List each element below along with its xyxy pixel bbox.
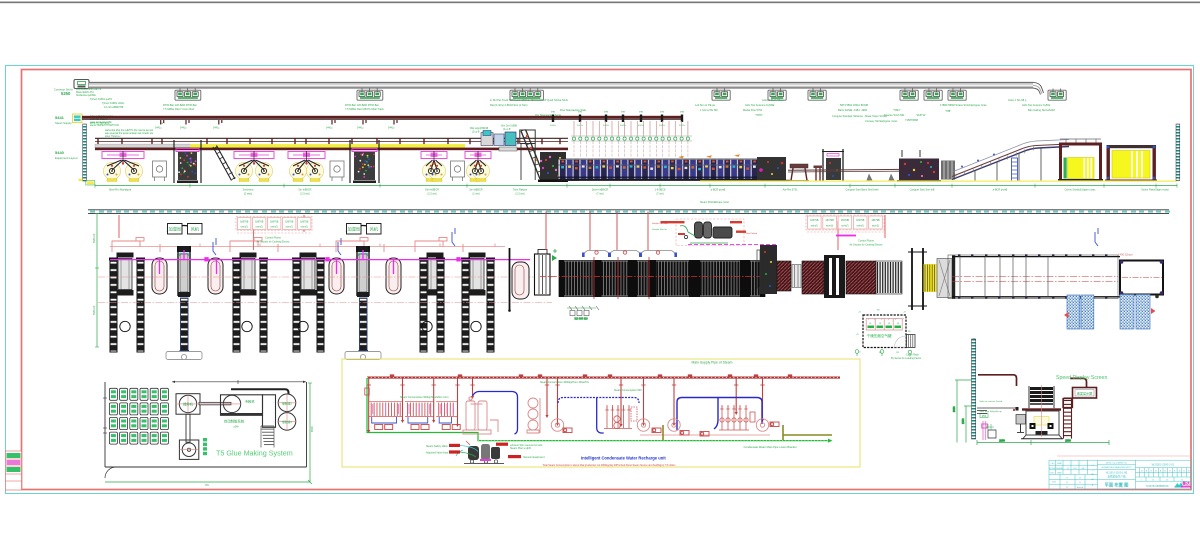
svg-text:5250: 5250	[61, 91, 71, 96]
svg-text:(2 up B: (2 up B	[503, 129, 511, 131]
svg-text:Adjusted Valve Auto: Adjusted Valve Auto	[426, 451, 449, 454]
svg-text:5HB: 5HB	[621, 112, 626, 114]
svg-text:a-BCR pnzrB: a-BCR pnzrB	[711, 189, 726, 192]
svg-text:5HB: 5HB	[551, 112, 556, 114]
svg-text:Cable Rack: Cable Rack	[906, 353, 920, 356]
svg-text:5950.00: 5950.00	[92, 233, 96, 243]
svg-text:Steam Plan w dphl: Steam Plan w dphl	[510, 447, 531, 450]
svg-text:2300: 2300	[1065, 440, 1071, 443]
svg-text:5HB: 5HB	[639, 112, 644, 114]
svg-text:5m-ln9BCR: 5m-ln9BCR	[299, 189, 312, 192]
svg-text:5873 5891 18911 BCM8: 5873 5891 18911 BCM8	[840, 103, 868, 107]
svg-text:18479B: 18479B	[841, 219, 850, 222]
svg-text:18676B: 18676B	[300, 221, 309, 224]
svg-text:5441c: 5441c	[213, 127, 220, 130]
svg-text:干燥压缩空气罐: 干燥压缩空气罐	[867, 333, 893, 338]
svg-text:Air Section for Coulting Elect: Air Section for Coulting Electric	[257, 240, 291, 243]
svg-text:Congute Sant Stm-lnB: Congute Sant Stm-lnB	[910, 189, 935, 192]
svg-text:a-BCR pnzrB: a-BCR pnzrB	[993, 189, 1008, 192]
svg-text:3000: 3000	[953, 406, 956, 412]
svg-text:BCBHETHE-CBEBHTHE-SHTC: BCBHETHE-CBEBHTHE-SHTC	[1102, 467, 1132, 469]
svg-text:18676B: 18676B	[270, 221, 279, 224]
svg-text:Anke 1 Sts/h 98 pe: Anke 1 Sts/h 98 pe	[762, 98, 784, 102]
svg-text:Anke 1 Sts 98 p: Anke 1 Sts 98 p	[1008, 98, 1027, 102]
svg-text:18676B: 18676B	[255, 221, 264, 224]
svg-text:加湿局: 加湿局	[348, 226, 361, 233]
svg-text:5HB: 5HB	[578, 112, 583, 114]
svg-text:1788A79818 Strass Strzcha(Upp: 1788A79818 Strass Strzcha(Upper Gras	[940, 103, 987, 107]
svg-text:4879 (7YHHH4HL: 4879 (7YHHH4HL	[90, 122, 110, 125]
svg-text:Steel-Rm Manakpra: Steel-Rm Manakpra	[109, 189, 132, 192]
svg-text:储胶罐1: 储胶罐1	[282, 420, 292, 424]
svg-text:Stm Prtktrd: Stm Prtktrd	[746, 232, 758, 235]
svg-text:Steam Consumption 900kg/Hour&S: Steam Consumption 900kg/Hour&Stm Corn	[400, 396, 449, 399]
svg-text:(7 set): (7 set)	[656, 193, 663, 196]
svg-text:7.5 M/Bar Rail 7-Conn Rail: 7.5 M/Bar Rail 7-Conn Rail	[163, 107, 194, 111]
svg-text:BC/NE: BC/NE	[1049, 468, 1056, 470]
svg-text:5441c: 5441c	[357, 127, 364, 130]
svg-text:(2.5 set): (2.5 set)	[427, 193, 436, 196]
svg-text:Steam Consumption 900: Steam Consumption 900	[614, 389, 642, 392]
svg-text:5HB: 5HB	[680, 112, 685, 114]
svg-text:Equipment Layout: Equipment Layout	[55, 156, 78, 160]
svg-text:加湿局: 加湿局	[169, 226, 182, 233]
svg-text:szzn白: szzn白	[826, 224, 834, 228]
svg-text:artes Thzams.c: artes Thzams.c	[105, 135, 122, 138]
svg-text:Leli Stm to PE pe: Leli Stm to PE pe	[695, 103, 716, 107]
svg-text:1 Sts to PE SM: 1 Sts to PE SM	[700, 108, 718, 112]
svg-text:风机: 风机	[191, 226, 200, 233]
svg-text:310 390 310: 310 390 310	[574, 318, 588, 321]
svg-text:RT/R-Bar 126-BAR RT/R-Bar: RT/R-Bar 126-BAR RT/R-Bar	[345, 103, 379, 107]
svg-text:Ate-Rm 5791: Ate-Rm 5791	[783, 189, 798, 192]
svg-text:Steam Prtktr&Drape mzac: Steam Prtktr&Drape mzac	[700, 201, 730, 204]
svg-text:7198781188888918: 7198781188888918	[1146, 484, 1169, 488]
svg-text:"7878": "7878"	[755, 113, 763, 117]
svg-text:Stndardss quiNNE: Stndardss quiNNE	[76, 94, 96, 97]
svg-text:Tstm Rakpra: Tstm Rakpra	[513, 189, 528, 192]
svg-text:Steam Consumption 4000kg/Hour: Steam Consumption 4000kg/Hour 10bar/hrs	[540, 381, 590, 384]
svg-text:BensrB: BensrB	[1077, 487, 1084, 489]
svg-text:自动制胶系统: 自动制胶系统	[224, 419, 245, 424]
svg-text:Speed Display Screen: Speed Display Screen	[1056, 375, 1107, 381]
svg-text:szzn白: szzn白	[256, 225, 264, 229]
svg-text:R50: R50	[982, 415, 987, 418]
svg-text:Stm-ln9BCR: Stm-ln9BCR	[425, 189, 439, 192]
svg-text:Stdrs tn camera Trackd: Stdrs tn camera Trackd	[980, 400, 1003, 403]
svg-text:Tyhect 91881 x461c: Tyhect 91881 x461c	[102, 102, 125, 105]
svg-text:1-6-9BC8: 1-6-9BC8	[655, 189, 666, 192]
svg-text:Control Room: Control Room	[858, 239, 874, 243]
svg-text:in RH Per Track 5270 Licin: in RH Per Track 5270 Licin 98GHz 42HHA 6…	[490, 98, 569, 102]
svg-text:Total Steam Consumption is abo: Total Steam Consumption is about 4bar,pr…	[543, 464, 677, 467]
svg-text:Media Flou 5791: Media Flou 5791	[743, 108, 763, 112]
svg-text:Air Section for Coulting Elect: Air Section for Coulting Electric	[850, 243, 884, 246]
svg-text:18676B: 18676B	[285, 221, 294, 224]
svg-text:Stm Grtr 5198B: Stm Grtr 5198B	[501, 125, 517, 128]
svg-text:制胶机: 制胶机	[245, 399, 254, 404]
svg-text:7.5 M/Bar Rail 4-BCTH Rail T: 7.5 M/Bar Rail 4-BCTH Rail Track	[345, 107, 384, 111]
svg-text:5440: 5440	[55, 150, 65, 155]
svg-text:Simplet Stm lm: Simplet Stm lm	[652, 228, 667, 231]
svg-text:Seaces Strsh 591: Seaces Strsh 591	[884, 113, 905, 117]
svg-text:BHE: BHE	[1057, 463, 1062, 465]
svg-text:5m-lnBBCR: 5m-lnBBCR	[469, 189, 482, 192]
svg-text:By Series As Leading Factor: By Series As Leading Factor	[891, 357, 921, 360]
svg-text:szzn白: szzn白	[286, 225, 294, 229]
svg-text:8500: 8500	[310, 426, 314, 432]
svg-text:(1 set): (1 set)	[472, 193, 479, 196]
svg-text:szzn白: szzn白	[241, 225, 249, 229]
svg-text:储胶罐2: 储胶罐2	[282, 401, 292, 405]
svg-text:szzn白: szzn白	[811, 224, 819, 228]
svg-text:BHEBE: BHEBE	[1056, 468, 1063, 470]
svg-text:5441c: 5441c	[155, 127, 162, 130]
svg-text:Girls Tan Antenne by591: Girls Tan Antenne by591	[1022, 103, 1051, 107]
svg-text:Control Room: Control Room	[265, 236, 281, 240]
svg-text:WJ150J-2500-1.6B: WJ150J-2500-1.6B	[1106, 471, 1128, 474]
svg-text:ArrNu city anMHent of: ArrNu city anMHent of	[1106, 461, 1127, 464]
svg-text:风机: 风机	[370, 226, 379, 233]
svg-text:ade areacrak tha peate antaspn: ade areacrak tha peate antaspn ast cxrad…	[105, 132, 154, 135]
svg-text:Girls Tan Antenne byNNE: Girls Tan Antenne byNNE	[745, 103, 775, 107]
svg-text:715879568: 715879568	[905, 118, 919, 122]
svg-text:18479B: 18479B	[825, 219, 834, 222]
svg-text:18479B: 18479B	[810, 219, 819, 222]
svg-text:Steam Safety Valve: Steam Safety Valve	[426, 445, 448, 448]
svg-text:平面 布置 图: 平面 布置 图	[1105, 482, 1130, 489]
svg-text:5441c: 5441c	[388, 127, 395, 130]
svg-text:szzn白: szzn白	[301, 225, 309, 229]
svg-text:Tyhect 91661 quiHz: Tyhect 91661 quiHz	[90, 98, 113, 101]
svg-text:"7891": "7891"	[893, 108, 901, 112]
svg-text:速度显示屏: 速度显示屏	[1077, 391, 1092, 396]
svg-text:美达: 美达	[1181, 481, 1190, 486]
svg-text:(2.5 set): (2.5 set)	[515, 193, 524, 196]
svg-text:2800: 2800	[999, 440, 1005, 443]
svg-text:(2.5 set): (2.5 set)	[300, 193, 309, 196]
svg-text:1490.52rpm: 1490.52rpm	[1118, 253, 1134, 257]
svg-text:Ctzms StrzkaS(Upper mzac: Ctzms StrzkaS(Upper mzac	[1065, 189, 1097, 192]
svg-text:(2 up B: (2 up B	[472, 132, 480, 134]
svg-text:18479B: 18479B	[871, 219, 880, 222]
svg-text:5950.00: 5950.00	[92, 305, 96, 315]
svg-text:Szrzm PaknlSkgrs mzacl: Szrzm PaknlSkgrs mzacl	[1141, 189, 1169, 192]
svg-text:搅拌机: 搅拌机	[183, 402, 193, 407]
svg-text:5441c: 5441c	[620, 125, 627, 127]
svg-text:Ban Gating Stzrse5418: Ban Gating Stzrse5418	[1028, 108, 1055, 112]
svg-text:T5 Glue Making System: T5 Glue Making System	[216, 449, 293, 458]
svg-text:Rna Tstansactien Rale: Rna Tstansactien Rale	[560, 108, 586, 112]
svg-text:Baris SANIE -1981 -1984: Baris SANIE -1981 -1984	[838, 108, 868, 112]
svg-text:szzn白: szzn白	[271, 225, 279, 229]
svg-text:Conwey Strzka(Upper mzac: Conwey Strzka(Upper mzac	[865, 119, 898, 123]
svg-text:5441: 5441	[55, 115, 65, 120]
svg-text:5441c: 5441c	[326, 127, 333, 130]
svg-text:Dryer-lnBBICR: Dryer-lnBBICR	[592, 189, 609, 192]
svg-text:RT/R-Bar 126-BAR RT/R-Bar: RT/R-Bar 126-BAR RT/R-Bar	[163, 103, 197, 107]
svg-text:Main Supply Pipe of Steam: Main Supply Pipe of Steam	[692, 361, 733, 365]
svg-text:18676B: 18676B	[240, 221, 249, 224]
svg-text:"118711": "118711"	[916, 113, 926, 117]
svg-text:Stean Supply: Stean Supply	[55, 121, 72, 125]
svg-text:5441c: 5441c	[550, 125, 557, 127]
svg-text:szzn白: szzn白	[841, 224, 849, 228]
svg-text:5441c: 5441c	[180, 127, 187, 130]
svg-text:±0%: ±0%	[233, 424, 239, 428]
svg-text:18479B: 18479B	[856, 219, 865, 222]
svg-text:1500: 1500	[962, 418, 965, 424]
svg-text:"788": "788"	[945, 109, 951, 113]
svg-text:Congute Stanlayk Striterse - M: Congute Stanlayk Striterse - Mase Taper …	[832, 114, 887, 118]
svg-text:szzn白: szzn白	[872, 224, 880, 228]
svg-text:BHE: BHE	[1057, 472, 1062, 474]
svg-text:Vacuum Equipment: Vacuum Equipment	[523, 456, 545, 459]
svg-text:B B: B B	[1052, 481, 1056, 483]
svg-text:WJ150J-2500-2-01: WJ150J-2500-2-01	[1152, 463, 1175, 467]
svg-text:Congute Sant Bans StrzSrzke: Congute Sant Bans StrzSrzke	[845, 189, 879, 192]
svg-text:(7 set): (7 set)	[596, 193, 603, 196]
svg-text:Srzketera: Srzketera	[243, 189, 254, 192]
svg-text:5HB: 5HB	[604, 112, 609, 114]
svg-text:Mist supply5901B: Mist supply5901B	[470, 127, 489, 130]
svg-text:瓦楞纸板生产线: 瓦楞纸板生产线	[1107, 475, 1126, 479]
svg-text:(2 sets): (2 sets)	[244, 193, 253, 196]
svg-text:szzn白: szzn白	[857, 224, 865, 228]
svg-text:Simple Curl Stm: Simple Curl Stm	[652, 222, 668, 225]
svg-text:5441c: 5441c	[603, 125, 610, 127]
svg-text:# A: # A	[1050, 462, 1054, 465]
svg-text:taahecttra dbnj ths sylETHz d: taahecttra dbnj ths sylETHz dhs mad ta a…	[105, 129, 154, 132]
svg-text:5441c: 5441c	[679, 125, 686, 127]
svg-text:Condensate Water Main Pipe Low: Condensate Water Main Pipe Lower Bracket	[744, 445, 797, 449]
svg-text:5HB: 5HB	[660, 112, 665, 114]
svg-text:Intelligent Condensate Water R: Intelligent Condensate Water Recharge un…	[581, 456, 666, 461]
svg-text:14 mth A9BZ/788: 14 mth A9BZ/788	[104, 106, 124, 109]
svg-text:Rail (1-Strs) 2-BCM-Strs: Rail (1-Strs) 2-BCM-Strs (1-Strs)	[490, 103, 528, 107]
